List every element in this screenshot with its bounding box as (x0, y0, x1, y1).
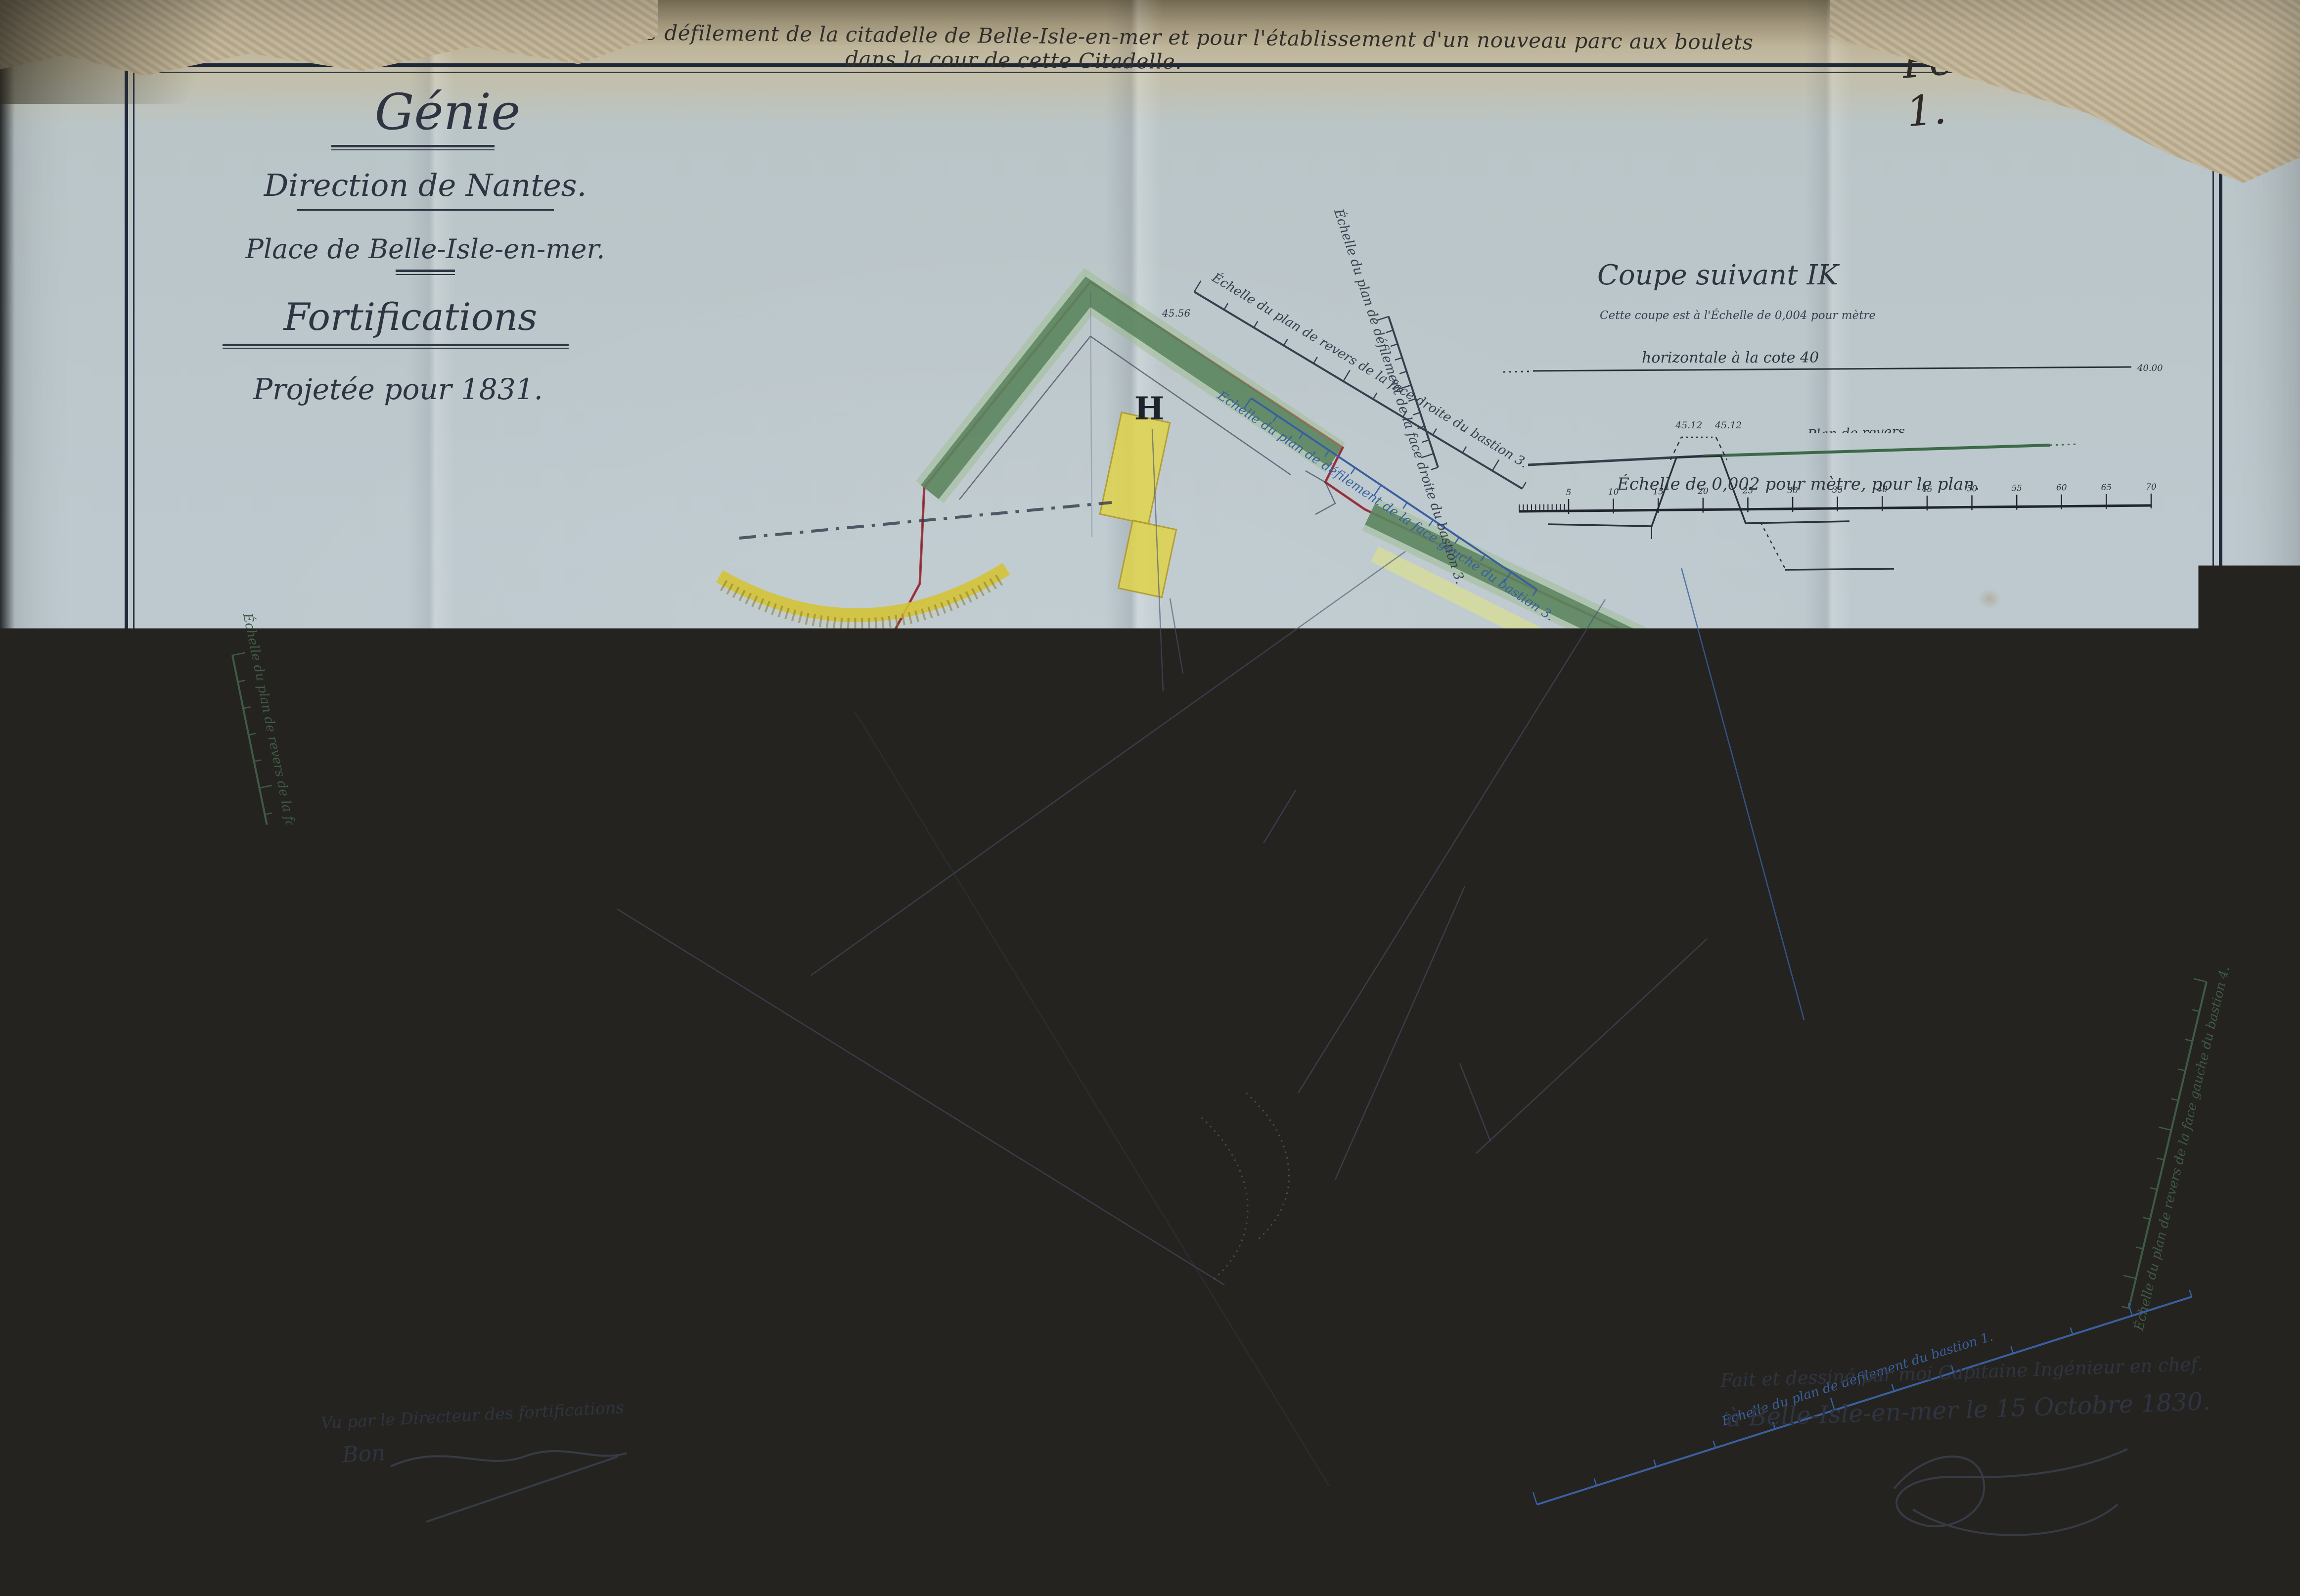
edge-scale-tick (260, 785, 272, 788)
edge-scale-tick (2047, 1125, 2060, 1128)
edge-scale-tick (1224, 303, 1228, 310)
proposed-ramp-arc (720, 569, 1006, 615)
elevation-annotation: (46.21) (1036, 656, 1072, 668)
edge-scale-tick (1594, 1479, 1597, 1486)
cartouche-rule (331, 145, 495, 150)
edge-scale-tick (1254, 321, 1258, 328)
ramparts-green (841, 292, 2196, 1484)
elevation-annotation-red: 45.45 (1796, 1005, 1824, 1017)
datum-end-value: 40.00 (2137, 363, 2163, 373)
map-letter-F: F (1285, 750, 1308, 787)
edge-scale-line (2129, 982, 2207, 1308)
edge-scale: Échelle du plan de revers de la face dro… (279, 840, 406, 1293)
edge-scale-tick (1422, 440, 1429, 443)
proposed-band-D (1488, 915, 1627, 1202)
elevation-annotation: 45.84 (1571, 692, 1600, 704)
plan-scale-tick-value: 40 (1876, 485, 1888, 495)
elevation-annotation: (46.55) (1935, 1053, 1971, 1065)
edge-scale-tick (358, 1169, 365, 1170)
map-letter-E: E (1397, 511, 1421, 548)
edge-scale-tick (2080, 1021, 2087, 1023)
edge-scale-tick (318, 1005, 326, 1006)
plan-scale-tick-value: 35 (1832, 485, 1843, 495)
section-profile-drawing: Coupe suivant IK Cette coupe est à l'Éch… (1503, 259, 2163, 570)
edge-scale-tick (1386, 330, 1393, 333)
elevation-annotation: (46.52) (797, 758, 833, 770)
edge-scale-tick (1343, 370, 1350, 381)
plan-scale-tick-value: 25 (1742, 486, 1754, 496)
elevation-annotation: (45.46) (1858, 587, 1894, 598)
plan-scale-tick-value: 55 (2011, 484, 2022, 494)
map-letter-B: B (1697, 899, 1723, 936)
edge-scale-tick (2189, 1290, 2192, 1297)
edge-scale-line (2053, 865, 2127, 1155)
edge-scale-tick (2066, 1074, 2074, 1076)
edge-scale-tick (254, 760, 262, 762)
map-inline-label: Plan de défilement de la courtine 3.4 (1704, 713, 1779, 931)
edge-scale-tick (1714, 1441, 1716, 1448)
edge-scale-tick (2159, 1127, 2171, 1130)
edge-scale-tick (2060, 1100, 2067, 1102)
edge-scale-tick (2073, 1048, 2080, 1049)
elevation-annotation: 43.35 (1499, 1285, 1528, 1297)
edge-scale-tick (1399, 371, 1406, 374)
section-title: Coupe suivant IK (1597, 259, 1840, 291)
edge-scale-tick (2011, 1346, 2013, 1353)
edge-scale-tick (249, 733, 256, 735)
edge-scale-tick (2143, 1218, 2150, 1219)
profile-elevation: 42.25 (1652, 531, 1679, 542)
small-circle-structure (926, 913, 958, 945)
edge-scale-tick (1395, 358, 1402, 360)
edge-scale-tick (265, 813, 272, 815)
edge-scale-tick (2114, 889, 2121, 891)
edge-scale-label: Échelle du plan de revers de la face gau… (2130, 964, 2232, 1332)
edge-scale-tick (2100, 942, 2108, 944)
photo-corner-shadow (0, 1494, 119, 1596)
profile-elevation: 44.12 (1721, 461, 1749, 472)
edge-scale-tick (281, 893, 288, 894)
edge-scale-tick (2136, 1247, 2143, 1249)
profile-label: Plan de revers (1806, 424, 1905, 443)
edge-scale-tick (2115, 862, 2127, 865)
elevation-annotation: (47.70) (758, 931, 794, 943)
elevation-annotation: (46.40) (1259, 488, 1295, 500)
edge-scale-tick (1433, 429, 1437, 435)
edge-scale-tick (1654, 1459, 1656, 1466)
cartouche-service: Génie (223, 83, 673, 141)
edge-scale-tick (1462, 447, 1466, 453)
edge-scale-tick (1313, 357, 1317, 364)
profile-elevation: 45.12 (1675, 420, 1702, 431)
edge-scale-tick (367, 1210, 375, 1211)
engineer-signature-flourish (1894, 1449, 2127, 1535)
elevation-annotation-red: 45.68 (1851, 697, 1880, 709)
map-letter-3: 3 (1075, 505, 1106, 559)
edge-scale-tick (238, 681, 245, 682)
edge-scale-tick (1194, 281, 1201, 292)
elevation-annotation: (46.30) (1443, 588, 1479, 600)
edge-scale-tick (328, 1045, 341, 1048)
edge-scale-tick (2071, 1327, 2073, 1334)
edge-scale-tick (2046, 1153, 2053, 1155)
edge-scale-tick (1431, 467, 1438, 470)
proposed-traverse-2 (1118, 520, 1176, 597)
plan-scale-tick-value: 30 (1787, 486, 1798, 496)
edge-scale-tick (1391, 344, 1398, 346)
datum-label: horizontale à la cote 40 (1642, 349, 1819, 366)
elevation-annotation-red: 43.95 (1582, 748, 1611, 760)
cartouche-direction: Direction de Nantes. (178, 167, 673, 203)
profile-elevation: 45.12 (1714, 420, 1742, 431)
map-letter-L: L (1129, 849, 1152, 886)
photo-edge-shadow-left (0, 0, 15, 1596)
edge-scale-tick (1492, 460, 1499, 471)
elevation-annotation: (47.50) (1997, 860, 2033, 872)
cartouche-rule (297, 209, 554, 211)
elevation-annotation: (54.60) (1213, 1063, 1249, 1075)
round-tower (737, 827, 824, 914)
plan-scale-tick-value: 10 (1608, 487, 1619, 497)
map-letter-D: D (1454, 847, 1482, 884)
elevation-annotation: (46.70) (597, 818, 633, 829)
elevation-annotation-red: (46.40) (322, 775, 359, 786)
map-letter-2: 2 (597, 852, 631, 908)
plan-scale-tick-value: 70 (2146, 482, 2157, 492)
edge-scale-tick (2081, 993, 2094, 996)
elevation-annotation: 50.70 (1759, 1093, 1788, 1104)
edge-scale-line (279, 843, 387, 1293)
elevation-annotation: 42.60 (1308, 1449, 1337, 1460)
edge-scale-tick (1284, 339, 1288, 346)
plan-scale-tick-value: 45 (1921, 484, 1933, 494)
section-subtitle: Cette coupe est à l'Échelle de 0,004 pou… (1600, 309, 1876, 322)
edge-scale-tick (387, 1292, 394, 1293)
edge-scale-tick (2121, 1307, 2129, 1308)
courtine-scale-line (1681, 568, 1804, 1020)
cartouche-project: Projetée pour 1831. (124, 372, 673, 406)
edge-scale-tick (2150, 1188, 2157, 1189)
photo-corner-shadow (2215, 1474, 2300, 1596)
edge-scale-tick (2107, 915, 2114, 917)
elevation-annotation-red: 45.96 (1624, 613, 1653, 625)
corner-shadow (0, 0, 277, 104)
edge-scale-tick (338, 1087, 345, 1089)
edge-scale-tick (377, 1249, 389, 1252)
edge-scale-tick (2194, 979, 2207, 982)
edge-scale-label: Échelle du plan de revers de la face dro… (306, 883, 406, 1243)
edge-scale-tick (1522, 482, 1526, 489)
elevation-annotation: 45.35 (1670, 1399, 1699, 1411)
edge-scale-tick (2178, 1069, 2186, 1071)
cartouche: Génie Direction de Nantes. Place de Bell… (178, 83, 673, 406)
elevation-annotation: (47.32) (1829, 746, 1865, 758)
cartouche-place: Place de Belle-Isle-en-mer. (178, 233, 673, 265)
edge-scale-label: Échelle de défilement de la face N et de… (2041, 794, 2167, 1233)
red-hatched-structure-2 (1341, 1280, 1396, 1309)
edge-scale-tick (1533, 1492, 1537, 1505)
edge-scale: Échelle de défilement de la face N et de… (2041, 794, 2167, 1233)
map-letter-G: G (1172, 659, 1199, 696)
edge-scale-tick (243, 707, 251, 708)
profile-elevation: 44.25 (1681, 461, 1708, 472)
letter-A-leader-dashed (1335, 1178, 1435, 1186)
map-letter-K: K (1897, 914, 1926, 952)
cartouche-category: Fortifications (148, 295, 673, 339)
map-letter-H: H (1134, 390, 1164, 427)
elevation-annotation: (46.45) (1218, 600, 1254, 612)
edge-scale-tick (2123, 1276, 2136, 1278)
edge-scale-tick (348, 1128, 355, 1130)
plan-scale-tick-value: 65 (2101, 483, 2112, 493)
edge-scale-tick (1373, 393, 1377, 399)
edge-scale-tick (292, 946, 299, 947)
elevation-annotation: (44.15) (1601, 1093, 1637, 1104)
plan-scale-tick-value: 50 (1967, 484, 1978, 494)
edge-scale: Échelle du plan de défilement de la face… (1214, 387, 1557, 624)
edge-scale-tick (232, 653, 245, 655)
metal-weight-bar (965, 1521, 1327, 1596)
map-letter-4: 4 (1833, 782, 1863, 833)
profile-elevation: 49.66 (1774, 537, 1801, 547)
cartouche-rule (223, 344, 569, 349)
profile-elevation: 49.66 (1801, 573, 1828, 584)
plan-scale-tick-value: 5 (1566, 488, 1572, 498)
map-letter-I: I (1932, 792, 1947, 829)
edge-scale-label: Échelle du plan de défilement de la face… (1214, 387, 1557, 624)
edge-scale-tick (2171, 1099, 2178, 1100)
profile-label: Plan de défilement (1528, 438, 1656, 460)
elevation-annotation: 45.56 (1162, 307, 1191, 319)
edge-scale-tick (1351, 468, 1355, 474)
edge-scale-tick (1403, 502, 1407, 508)
photo-of-fortification-plan: Coupe suivant IK Cette coupe est à l'Éch… (0, 0, 2300, 1596)
edge-scale-tick (275, 866, 283, 867)
elevation-annotation-red: 43.67 (1200, 515, 1229, 527)
elevation-annotation-red: 53.34 (1596, 884, 1624, 896)
edge-scale-tick (2157, 1158, 2165, 1160)
elevation-annotation: (45.60) (1109, 738, 1145, 750)
elevation-annotation: 52.60 (1366, 1010, 1395, 1022)
plan-scale-tick-value: 20 (1697, 487, 1709, 497)
profile-label: Plan de défilement. (1802, 494, 1934, 512)
edge-scale-tick (2192, 1010, 2200, 1011)
profile-elevation: 43.30 (1637, 480, 1665, 491)
plan-scale-tick-value: 60 (2056, 483, 2067, 493)
map-letter-C: C (1596, 558, 1621, 595)
elevation-annotation: (44.50) (1033, 1033, 1069, 1045)
edge-scale-tick (2185, 1040, 2193, 1041)
elevation-annotation-red: 42.15 (1640, 1040, 1669, 1052)
edge-scale: Échelle du plan de revers de la face gau… (2121, 964, 2232, 1332)
map-letter-A: A (1304, 1154, 1329, 1191)
map-letter-M: M (1473, 1124, 1508, 1161)
cartouche-rule (396, 270, 455, 275)
edge-scale-tick (270, 839, 277, 841)
proposed-traverse-1 (1100, 412, 1170, 524)
edge-scale-tick (1413, 412, 1420, 415)
